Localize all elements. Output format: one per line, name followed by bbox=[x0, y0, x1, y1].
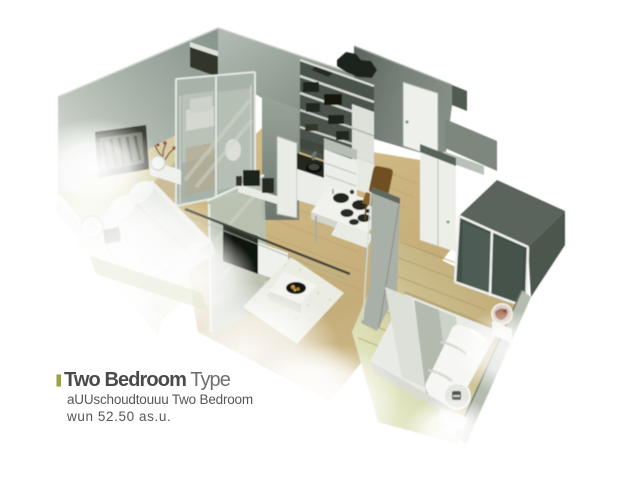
svg-text:aUUschoudtouuu Two Bedroom: aUUschoudtouuu Two Bedroom bbox=[67, 392, 253, 407]
svg-text:wun 52.50 as.u.: wun 52.50 as.u. bbox=[66, 409, 171, 424]
svg-text:Two Bedroom Type: Two Bedroom Type bbox=[64, 369, 231, 391]
